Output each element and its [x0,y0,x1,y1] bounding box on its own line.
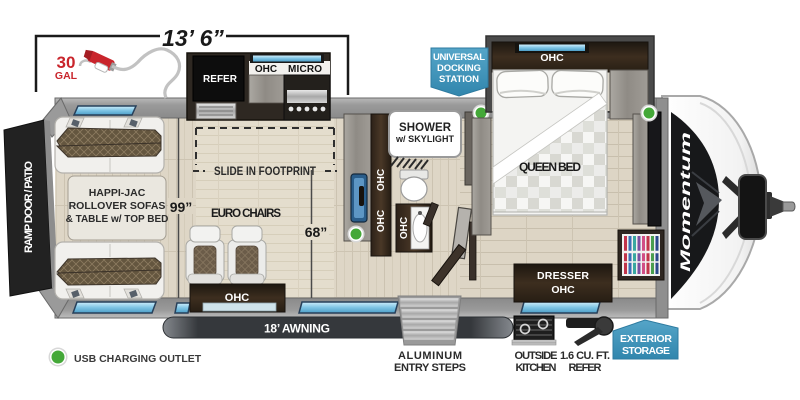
svg-text:UNIVERSAL: UNIVERSAL [433,52,485,63]
svg-text:SHOWER: SHOWER [399,122,452,134]
svg-text:QUEEN BED: QUEEN BED [519,160,581,174]
svg-text:ALUMINUM: ALUMINUM [398,350,462,362]
svg-text:EURO CHAIRS: EURO CHAIRS [211,208,281,220]
svg-text:STATION: STATION [439,74,479,85]
svg-text:OHC: OHC [255,64,277,75]
svg-text:USB CHARGING OUTLET: USB CHARGING OUTLET [74,353,202,365]
svg-text:Momentum: Momentum [677,132,693,272]
svg-text:KITCHEN: KITCHEN [516,362,557,374]
svg-text:STORAGE: STORAGE [622,345,670,357]
svg-text:MICRO: MICRO [288,64,322,75]
svg-text:1.6 CU. FT.: 1.6 CU. FT. [560,350,610,362]
svg-text:OHC: OHC [540,52,564,64]
svg-text:OHC: OHC [551,284,575,296]
svg-text:DRESSER: DRESSER [537,270,589,282]
svg-text:ROLLOVER SOFAS: ROLLOVER SOFAS [69,200,166,212]
svg-text:OHC: OHC [376,210,387,232]
svg-text:DOCKING: DOCKING [437,63,481,74]
svg-text:18’ AWNING: 18’ AWNING [264,322,330,336]
svg-text:OHC: OHC [376,169,387,191]
svg-text:13’ 6”: 13’ 6” [162,25,224,51]
svg-text:OHC: OHC [399,217,410,239]
svg-text:GAL: GAL [55,70,78,82]
svg-text:99”: 99” [170,199,193,215]
svg-text:SLIDE IN FOOTPRINT: SLIDE IN FOOTPRINT [214,164,317,178]
svg-text:& TABLE w/ TOP BED: & TABLE w/ TOP BED [66,214,169,225]
svg-text:REFER: REFER [203,74,238,85]
svg-text:OHC: OHC [225,292,250,304]
svg-text:w/ SKYLIGHT: w/ SKYLIGHT [395,134,455,144]
svg-text:ENTRY STEPS: ENTRY STEPS [394,362,466,374]
svg-text:OUTSIDE: OUTSIDE [515,350,558,362]
svg-text:HAPPI-JAC: HAPPI-JAC [89,187,146,199]
svg-text:68”: 68” [305,224,328,240]
svg-text:EXTERIOR: EXTERIOR [620,333,672,345]
svg-text:REFER: REFER [569,362,602,374]
svg-text:RAMP DOOR / PATIO: RAMP DOOR / PATIO [23,161,35,253]
